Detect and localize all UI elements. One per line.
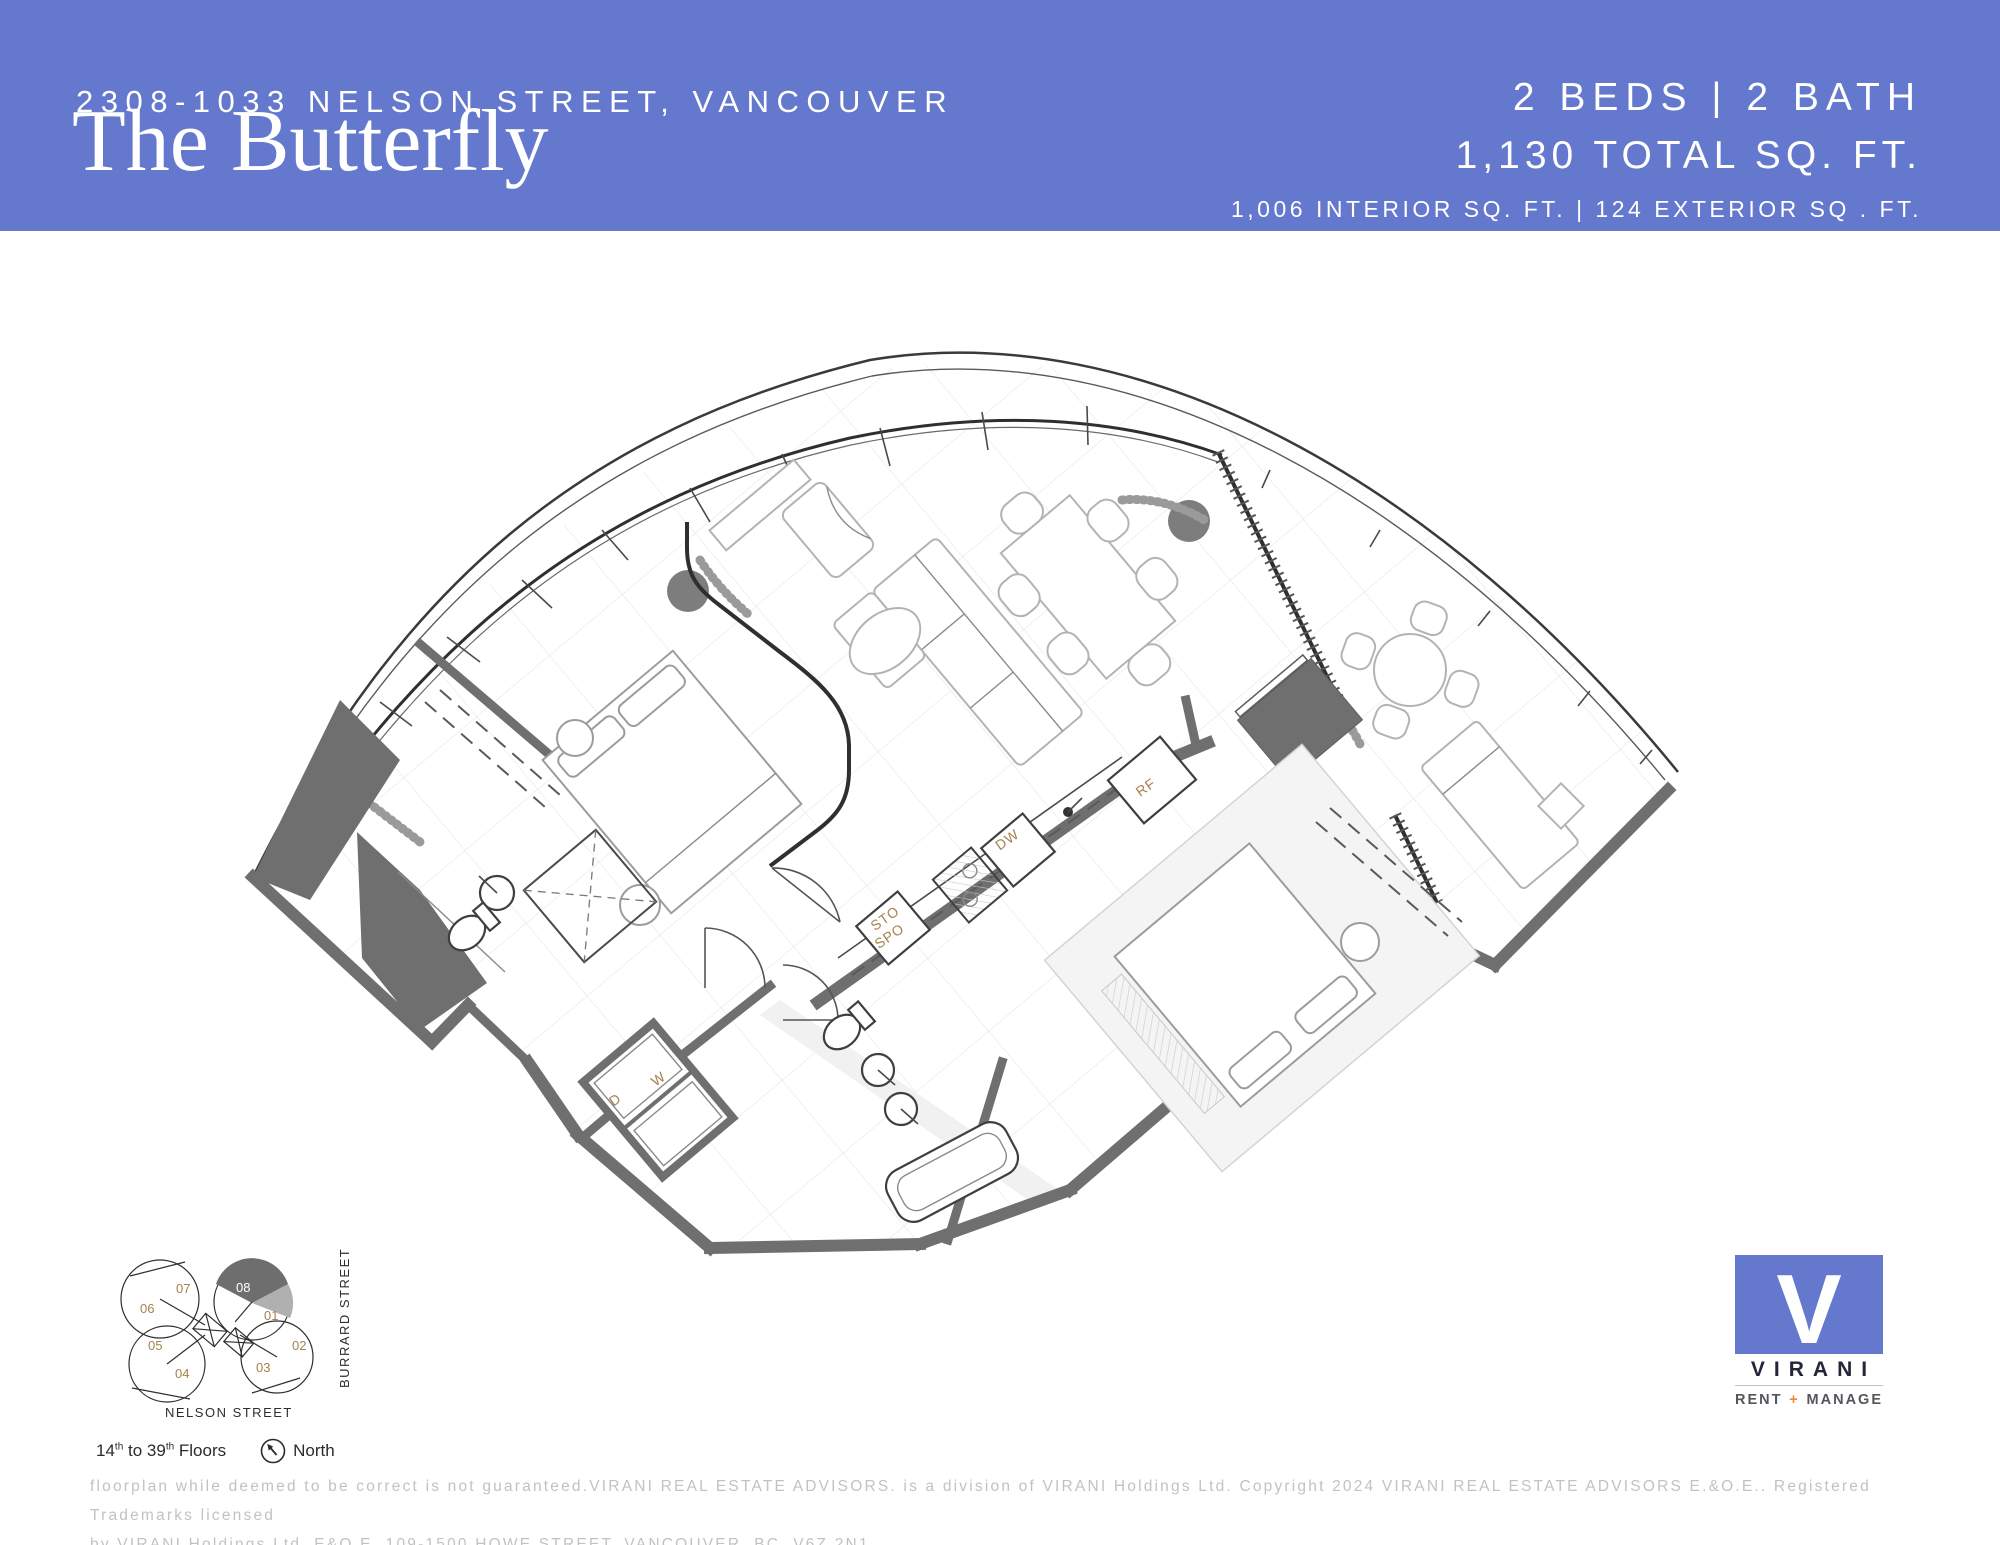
floors-note: 14th to 39th Floors North — [96, 1438, 335, 1464]
unit-label-05: 05 — [148, 1338, 162, 1353]
floors-text: 14th to 39th Floors — [96, 1441, 226, 1461]
building-key-plan: 01 02 03 04 05 06 07 08 BURRARD STREET N… — [85, 1248, 385, 1428]
total-area-line: 1,130 TOTAL SQ. FT. — [1231, 134, 1922, 178]
logo-square: V — [1735, 1255, 1883, 1354]
tagline-rent: RENT — [1735, 1392, 1782, 1408]
burrard-street-label: BURRARD STREET — [337, 1248, 352, 1388]
logo-tagline: RENT + MANAGE — [1735, 1392, 1883, 1408]
nightstand — [557, 720, 593, 756]
disclaimer-line-1: floorplan while deemed to be correct is … — [90, 1472, 1930, 1530]
unit-label-02: 02 — [292, 1338, 306, 1353]
unit-label-03: 03 — [256, 1360, 270, 1375]
disclaimer-line-2: by VIRANI Holdings Ltd. E&O.E. 109-1500 … — [90, 1530, 1930, 1545]
unit-label-01: 01 — [264, 1308, 278, 1323]
stool — [1341, 923, 1379, 961]
key-plan-lobes — [121, 1258, 313, 1402]
unit-stats: 2 BEDS | 2 BATH 1,130 TOTAL SQ. FT. 1,00… — [1231, 76, 1922, 223]
building-core — [193, 1307, 254, 1364]
unit-label-07: 07 — [176, 1281, 190, 1296]
unit-label-06: 06 — [140, 1301, 154, 1316]
disclaimer: floorplan while deemed to be correct is … — [90, 1472, 1930, 1545]
header-banner: 2308-1033 NELSON STREET, VANCOUVER The B… — [0, 0, 2000, 231]
logo-v-icon: V — [1776, 1260, 1841, 1358]
virani-logo: V VIRANI RENT + MANAGE — [1735, 1255, 1883, 1408]
patio-table — [1374, 634, 1446, 706]
area-breakdown-line: 1,006 INTERIOR SQ. FT. | 124 EXTERIOR SQ… — [1231, 196, 1922, 223]
north-label: North — [293, 1441, 335, 1461]
north-indicator: North — [260, 1438, 335, 1464]
logo-divider — [1735, 1385, 1883, 1386]
stool — [620, 885, 660, 925]
north-arrow-icon — [260, 1438, 286, 1464]
page-title: The Butterfly — [72, 98, 549, 186]
tagline-manage: MANAGE — [1807, 1392, 1883, 1408]
nelson-street-label: NELSON STREET — [165, 1405, 293, 1420]
unit-label-04: 04 — [175, 1366, 189, 1381]
unit-label-08: 08 — [236, 1280, 250, 1295]
floorplan-drawing: RF DW STO SPO — [230, 330, 1690, 1260]
beds-baths-line: 2 BEDS | 2 BATH — [1231, 76, 1922, 120]
tagline-plus: + — [1789, 1392, 1799, 1408]
flyer-page: 2308-1033 NELSON STREET, VANCOUVER The B… — [0, 0, 2000, 1545]
